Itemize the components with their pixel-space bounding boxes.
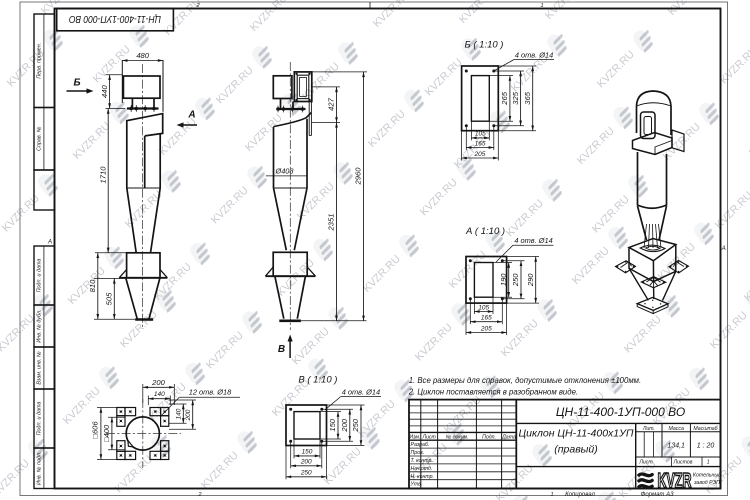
svg-text:105: 105 (478, 304, 489, 311)
svg-text:Формат А3: Формат А3 (641, 492, 674, 498)
svg-text:Подп.: Подп. (482, 434, 496, 440)
svg-text:427: 427 (327, 97, 336, 110)
svg-text:Изм.: Изм. (409, 434, 420, 440)
svg-text:Перв. примен.: Перв. примен. (37, 43, 43, 79)
svg-text:В ( 1:10 ): В ( 1:10 ) (298, 375, 337, 386)
svg-text:1: 1 (550, 492, 553, 498)
svg-text:165: 165 (481, 315, 492, 322)
svg-text:200: 200 (151, 378, 165, 387)
svg-text:Листов: Листов (673, 460, 693, 466)
svg-text:Нач.отд.: Нач.отд. (411, 466, 433, 472)
svg-text:А: А (47, 240, 52, 246)
svg-text:105: 105 (475, 131, 486, 138)
svg-text:4 отв. Ø14: 4 отв. Ø14 (515, 51, 553, 60)
svg-text:250: 250 (511, 273, 520, 287)
svg-text:150: 150 (328, 418, 337, 431)
svg-text:Б: Б (73, 78, 80, 89)
svg-text:200: 200 (185, 409, 192, 421)
svg-text:200: 200 (300, 459, 312, 466)
svg-text:А ( 1:10 ): А ( 1:10 ) (465, 226, 505, 237)
svg-text:2: 2 (195, 3, 199, 9)
svg-text:1: 1 (540, 3, 543, 9)
svg-text:Б ( 1:10 ): Б ( 1:10 ) (465, 40, 504, 51)
svg-text:1 : 20: 1 : 20 (697, 442, 715, 449)
svg-text:Копировал: Копировал (565, 492, 595, 498)
svg-text:Подп. и дата: Подп. и дата (37, 259, 43, 293)
svg-text:165: 165 (475, 140, 486, 147)
svg-text:Инв. № подл.: Инв. № подл. (37, 452, 43, 485)
svg-text:В: В (278, 344, 285, 355)
svg-text:150: 150 (302, 449, 313, 456)
svg-text:200: 200 (340, 418, 349, 432)
svg-text:440: 440 (100, 85, 109, 98)
svg-text:Утв.: Утв. (411, 482, 423, 488)
svg-text:Дата: Дата (501, 434, 516, 440)
svg-text:А: А (721, 246, 726, 252)
svg-text:2: 2 (197, 492, 201, 498)
svg-text:1. Все размеры для справок, до: 1. Все размеры для справок, допустимые о… (409, 376, 642, 385)
svg-text:Справ. №: Справ. № (37, 126, 43, 151)
svg-text:2351: 2351 (327, 214, 336, 232)
svg-text:250: 250 (351, 418, 360, 432)
svg-text:205: 205 (480, 325, 492, 332)
svg-text:Котельный: Котельный (693, 472, 721, 479)
svg-text:Пров.: Пров. (411, 450, 425, 456)
svg-text:325: 325 (511, 91, 520, 104)
svg-text:2. Циклон поставляется в разоб: 2. Циклон поставляется в разобранном вид… (408, 388, 578, 397)
svg-text:Лист: Лист (638, 460, 653, 466)
svg-text:365: 365 (523, 91, 532, 104)
svg-text:480: 480 (136, 51, 149, 60)
svg-text:завод РЭП: завод РЭП (693, 480, 720, 486)
svg-text:Циклон ЦН-11-400х1УП: Циклон ЦН-11-400х1УП (519, 428, 634, 440)
svg-text:4 отв. Ø14: 4 отв. Ø14 (342, 388, 380, 397)
svg-text:Т. контр.: Т. контр. (411, 458, 433, 464)
svg-text:ЦН-11-400-1УП-000 ВО: ЦН-11-400-1УП-000 ВО (556, 405, 685, 419)
svg-text:(правый): (правый) (554, 444, 598, 456)
svg-text:205: 205 (474, 151, 486, 158)
svg-text:Взам. инв. №: Взам. инв. № (37, 351, 43, 385)
svg-text:12 отв. Ø18: 12 отв. Ø18 (189, 388, 232, 397)
svg-text:□400: □400 (102, 424, 111, 442)
svg-text:140: 140 (154, 391, 165, 398)
svg-text:505: 505 (105, 292, 114, 305)
svg-text:250: 250 (300, 470, 312, 477)
svg-text:Подп. и дата: Подп. и дата (37, 402, 43, 436)
svg-text:Разраб.: Разраб. (411, 442, 430, 448)
svg-text:KVZR: KVZR (658, 470, 692, 493)
svg-text:190: 190 (499, 273, 508, 286)
svg-text:□606: □606 (91, 421, 100, 439)
svg-text:Лит.: Лит. (642, 426, 655, 432)
svg-text:Ø408: Ø408 (274, 167, 294, 176)
svg-text:290: 290 (526, 273, 535, 287)
svg-text:Масса: Масса (669, 426, 684, 432)
svg-text:4 отв. Ø14: 4 отв. Ø14 (514, 236, 552, 245)
svg-text:А: А (187, 110, 195, 121)
svg-text:Н. контр.: Н. контр. (411, 474, 434, 480)
svg-text:Масштаб: Масштаб (693, 426, 718, 432)
svg-text:1710: 1710 (98, 166, 107, 184)
svg-text:810: 810 (88, 279, 97, 292)
svg-text:Инв. № дубл.: Инв. № дубл. (37, 309, 43, 342)
svg-text:Лист: Лист (422, 434, 437, 440)
svg-text:ЦН-11-400-1УП-000 ВО: ЦН-11-400-1УП-000 ВО (69, 13, 161, 24)
svg-text:265: 265 (500, 91, 509, 105)
svg-text:№ докум.: № докум. (446, 434, 469, 440)
svg-text:2960: 2960 (354, 167, 363, 186)
svg-text:1: 1 (707, 460, 710, 466)
svg-text:134,1: 134,1 (667, 442, 685, 449)
svg-text:140: 140 (176, 408, 183, 419)
